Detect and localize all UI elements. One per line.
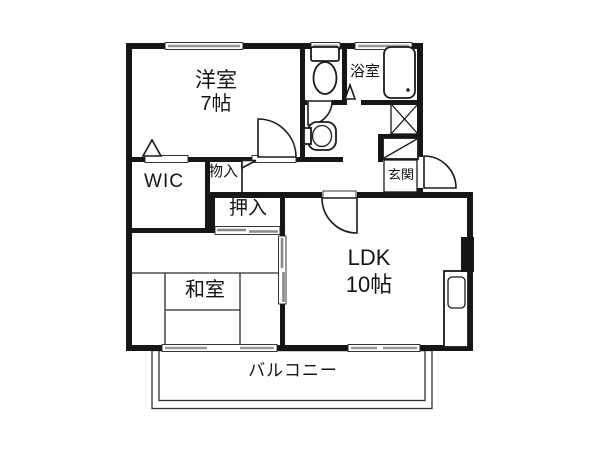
toilet-icon <box>311 47 339 94</box>
kitchen-sink-icon <box>444 271 468 347</box>
ldk-door-arc <box>322 198 357 233</box>
wall-segment <box>300 100 307 105</box>
label-entrance: 玄関 <box>385 168 417 182</box>
wall-segment <box>126 345 162 351</box>
wall-segment <box>210 192 215 233</box>
label-closet: 押入 <box>219 199 277 219</box>
bathtub-icon <box>384 47 415 98</box>
western-room-door-arc <box>258 119 296 157</box>
wall-segment <box>280 304 285 351</box>
ldk-side-opening <box>461 237 474 272</box>
label-western-room-size: 7帖 <box>180 94 252 115</box>
window <box>348 345 420 352</box>
label-balcony: バルコニー <box>240 362 346 380</box>
wall-segment <box>296 157 343 162</box>
japanese-room-sliding-door <box>279 236 287 304</box>
wall-segment <box>332 100 345 105</box>
label-bathroom: 浴室 <box>344 64 386 80</box>
window <box>165 43 243 50</box>
wall-segment <box>357 192 473 198</box>
wall-segment <box>126 43 132 351</box>
wall-segment <box>280 192 285 236</box>
window <box>162 345 277 352</box>
wall-segment <box>277 345 348 351</box>
washing-machine-pan-icon <box>391 104 418 134</box>
floor-plan: 洋室 7帖 浴室 WIC 物入 押入 玄関 和室 LDK 10帖 バルコニー <box>0 0 600 450</box>
wic-folding-door-icon <box>143 140 161 156</box>
entrance-door-arc <box>424 156 456 188</box>
wall-segment <box>126 157 145 162</box>
label-ldk-size: 10帖 <box>336 273 402 296</box>
floor-plan-drawing <box>0 0 600 450</box>
storage-door-icon <box>242 161 256 169</box>
wall-segment <box>126 228 215 233</box>
washbasin-icon <box>304 122 336 150</box>
walls <box>126 43 473 351</box>
label-wic: WIC <box>136 172 192 192</box>
label-storage: 物入 <box>206 164 240 180</box>
label-japanese-room: 和室 <box>176 280 234 301</box>
shoe-cabinet-icon <box>383 138 418 159</box>
closet-sliding-door <box>215 227 280 235</box>
label-ldk: LDK <box>340 246 398 269</box>
label-western-room: 洋室 <box>180 70 252 92</box>
